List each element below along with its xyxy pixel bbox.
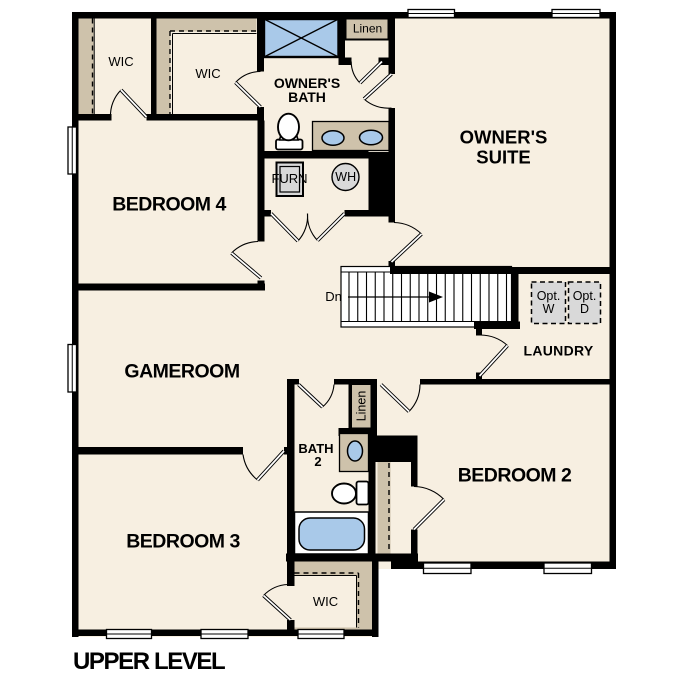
svg-text:Dn: Dn [325, 289, 342, 304]
svg-text:BEDROOM 3: BEDROOM 3 [126, 531, 240, 553]
svg-text:BEDROOM 4: BEDROOM 4 [112, 194, 226, 216]
svg-text:GAMEROOM: GAMEROOM [124, 361, 239, 383]
svg-text:WIC: WIC [313, 594, 338, 609]
svg-text:Opt.: Opt. [573, 289, 597, 303]
svg-text:Opt.: Opt. [537, 289, 561, 303]
svg-text:UPPER LEVEL: UPPER LEVEL [73, 648, 225, 675]
svg-text:2: 2 [314, 454, 321, 469]
svg-text:WIC: WIC [108, 54, 133, 69]
svg-text:D: D [580, 302, 589, 316]
svg-text:OWNER'S: OWNER'S [460, 127, 548, 148]
svg-text:Linen: Linen [355, 391, 369, 422]
svg-text:W: W [543, 302, 555, 316]
svg-text:WIC: WIC [195, 66, 220, 81]
svg-text:BEDROOM 2: BEDROOM 2 [458, 465, 572, 487]
svg-text:SUITE: SUITE [476, 147, 530, 168]
svg-text:Linen: Linen [353, 22, 382, 36]
svg-text:BATH: BATH [288, 89, 326, 105]
svg-text:LAUNDRY: LAUNDRY [523, 343, 593, 359]
svg-text:FURN: FURN [271, 171, 307, 186]
svg-text:WH: WH [335, 170, 356, 184]
